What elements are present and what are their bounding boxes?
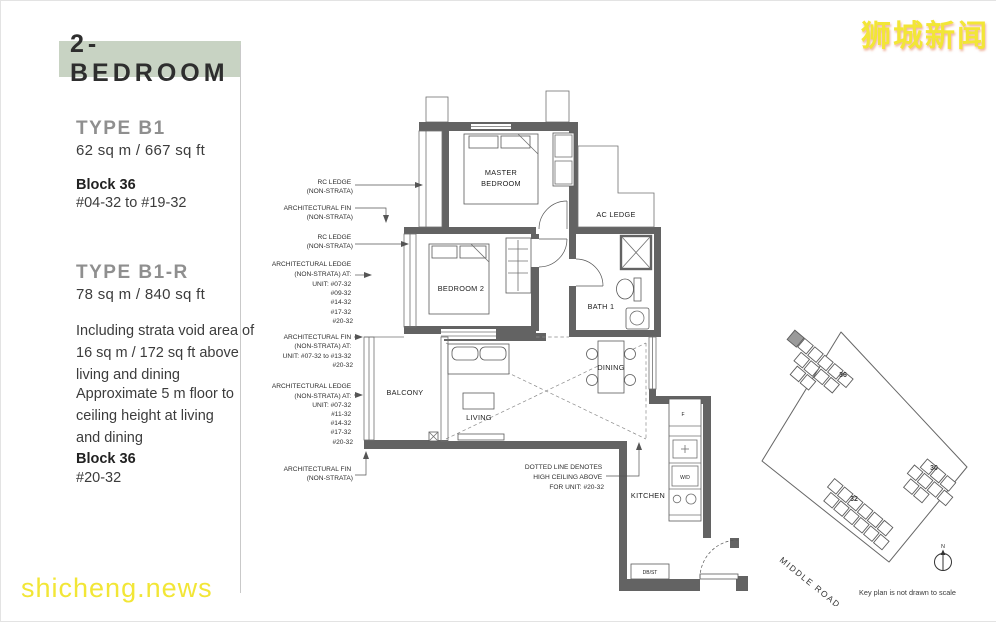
- key-plan: 36 32 30 MIDDLE ROAD N Key plan is not d…: [757, 321, 996, 606]
- living-label: LIVING: [466, 413, 492, 422]
- keyplan-caption: Key plan is not drawn to scale: [859, 588, 956, 597]
- master-bedroom-label: MASTER: [485, 168, 517, 177]
- type-b1r-area: 78 sq m / 840 sq ft: [76, 286, 205, 303]
- ac-ledge-label: AC LEDGE: [596, 210, 635, 219]
- svg-text:N: N: [941, 544, 945, 550]
- north-arrow-icon: N: [935, 544, 952, 571]
- strata-void-note-line: Including strata void area of: [76, 320, 254, 342]
- callout-arch-ledge-2: ARCHITECTURAL LEDGE (NON-STRATA) AT: UNI…: [272, 383, 353, 446]
- type-b1r-units: #20-32: [76, 470, 121, 486]
- type-b1-heading: TYPE B1: [76, 118, 166, 140]
- type-b1r-block: Block 36: [76, 451, 136, 467]
- dbst-label: DB/ST: [643, 570, 658, 576]
- master-wardrobe: [553, 133, 574, 186]
- ceiling-height-note: Approximate 5 m floor to ceiling height …: [76, 383, 234, 449]
- bedroom2-bed: [429, 244, 489, 314]
- type-b1-area: 62 sq m / 667 sq ft: [76, 142, 205, 159]
- middle-road-label: MIDDLE ROAD: [778, 555, 843, 606]
- type-b1-block: Block 36: [76, 177, 136, 193]
- floorplan-drawing: MASTER BEDROOM BEDROOM 2 BATH 1 AC LEDGE…: [256, 89, 766, 609]
- ceiling-height-note-line: and dining: [76, 427, 234, 449]
- balcony-label: BALCONY: [387, 388, 424, 397]
- kitchen-counter: [669, 399, 701, 521]
- tv-console: [458, 434, 504, 440]
- title-block: 2-BEDROOM: [59, 41, 241, 77]
- vertical-divider: [240, 45, 241, 593]
- block-32-cluster: [819, 479, 897, 550]
- kitchen-label: KITCHEN: [631, 491, 665, 500]
- floor-trap: [429, 432, 438, 441]
- callout-arch-fin-2: ARCHITECTURAL FIN (NON-STRATA) AT: UNIT:…: [283, 334, 354, 369]
- block-36-cluster: [771, 330, 853, 407]
- bedroom2-wardrobe: [506, 238, 531, 293]
- callout-arch-fin-1: ARCHITECTURAL FIN (NON-STRATA): [284, 205, 353, 221]
- floorplan-page: 2-BEDROOM TYPE B1 62 sq m / 667 sq ft Bl…: [0, 0, 996, 622]
- block-32-label: 32: [850, 496, 858, 503]
- rc-ledge-top: [426, 91, 569, 122]
- bedroom2-label: BEDROOM 2: [438, 284, 485, 293]
- master-bedroom-label: BEDROOM: [481, 179, 521, 188]
- callout-rc-ledge-1: RC LEDGE (NON-STRATA): [307, 179, 353, 195]
- page-title: 2-BEDROOM: [70, 30, 241, 88]
- block-36-label: 36: [839, 372, 847, 379]
- block-30-label: 30: [930, 465, 938, 472]
- coffee-table: [463, 393, 494, 409]
- bath1-label: BATH 1: [588, 302, 615, 311]
- type-b1r-heading: TYPE B1-R: [76, 262, 189, 284]
- callout-arch-fin-3: ARCHITECTURAL FIN (NON-STRATA): [284, 466, 353, 482]
- ceiling-height-note-line: ceiling height at living: [76, 405, 234, 427]
- bath1-fixtures: [617, 236, 652, 329]
- dining-label: DINING: [597, 363, 624, 372]
- callout-arch-ledge-1: ARCHITECTURAL LEDGE (NON-STRATA) AT: UNI…: [272, 261, 353, 325]
- type-b1-units: #04-32 to #19-32: [76, 195, 186, 211]
- callout-rc-ledge-2: RC LEDGE (NON-STRATA): [307, 234, 353, 250]
- svg-text:DOTTED LINE DENOTES HI: DOTTED LINE DENOTES HIGH CEILING ABOVE F…: [525, 464, 604, 491]
- strata-void-note: Including strata void area of 16 sq m / …: [76, 320, 254, 386]
- ceiling-height-note-line: Approximate 5 m floor to: [76, 383, 234, 405]
- washer-dryer-label: W/D: [680, 475, 690, 481]
- sitelogo-watermark: 狮城新闻: [861, 11, 989, 55]
- fridge-label: F: [681, 412, 684, 418]
- sitename-watermark: shicheng.news: [21, 573, 213, 604]
- sofa: [448, 344, 509, 374]
- strata-void-note-line: 16 sq m / 172 sq ft above: [76, 342, 254, 364]
